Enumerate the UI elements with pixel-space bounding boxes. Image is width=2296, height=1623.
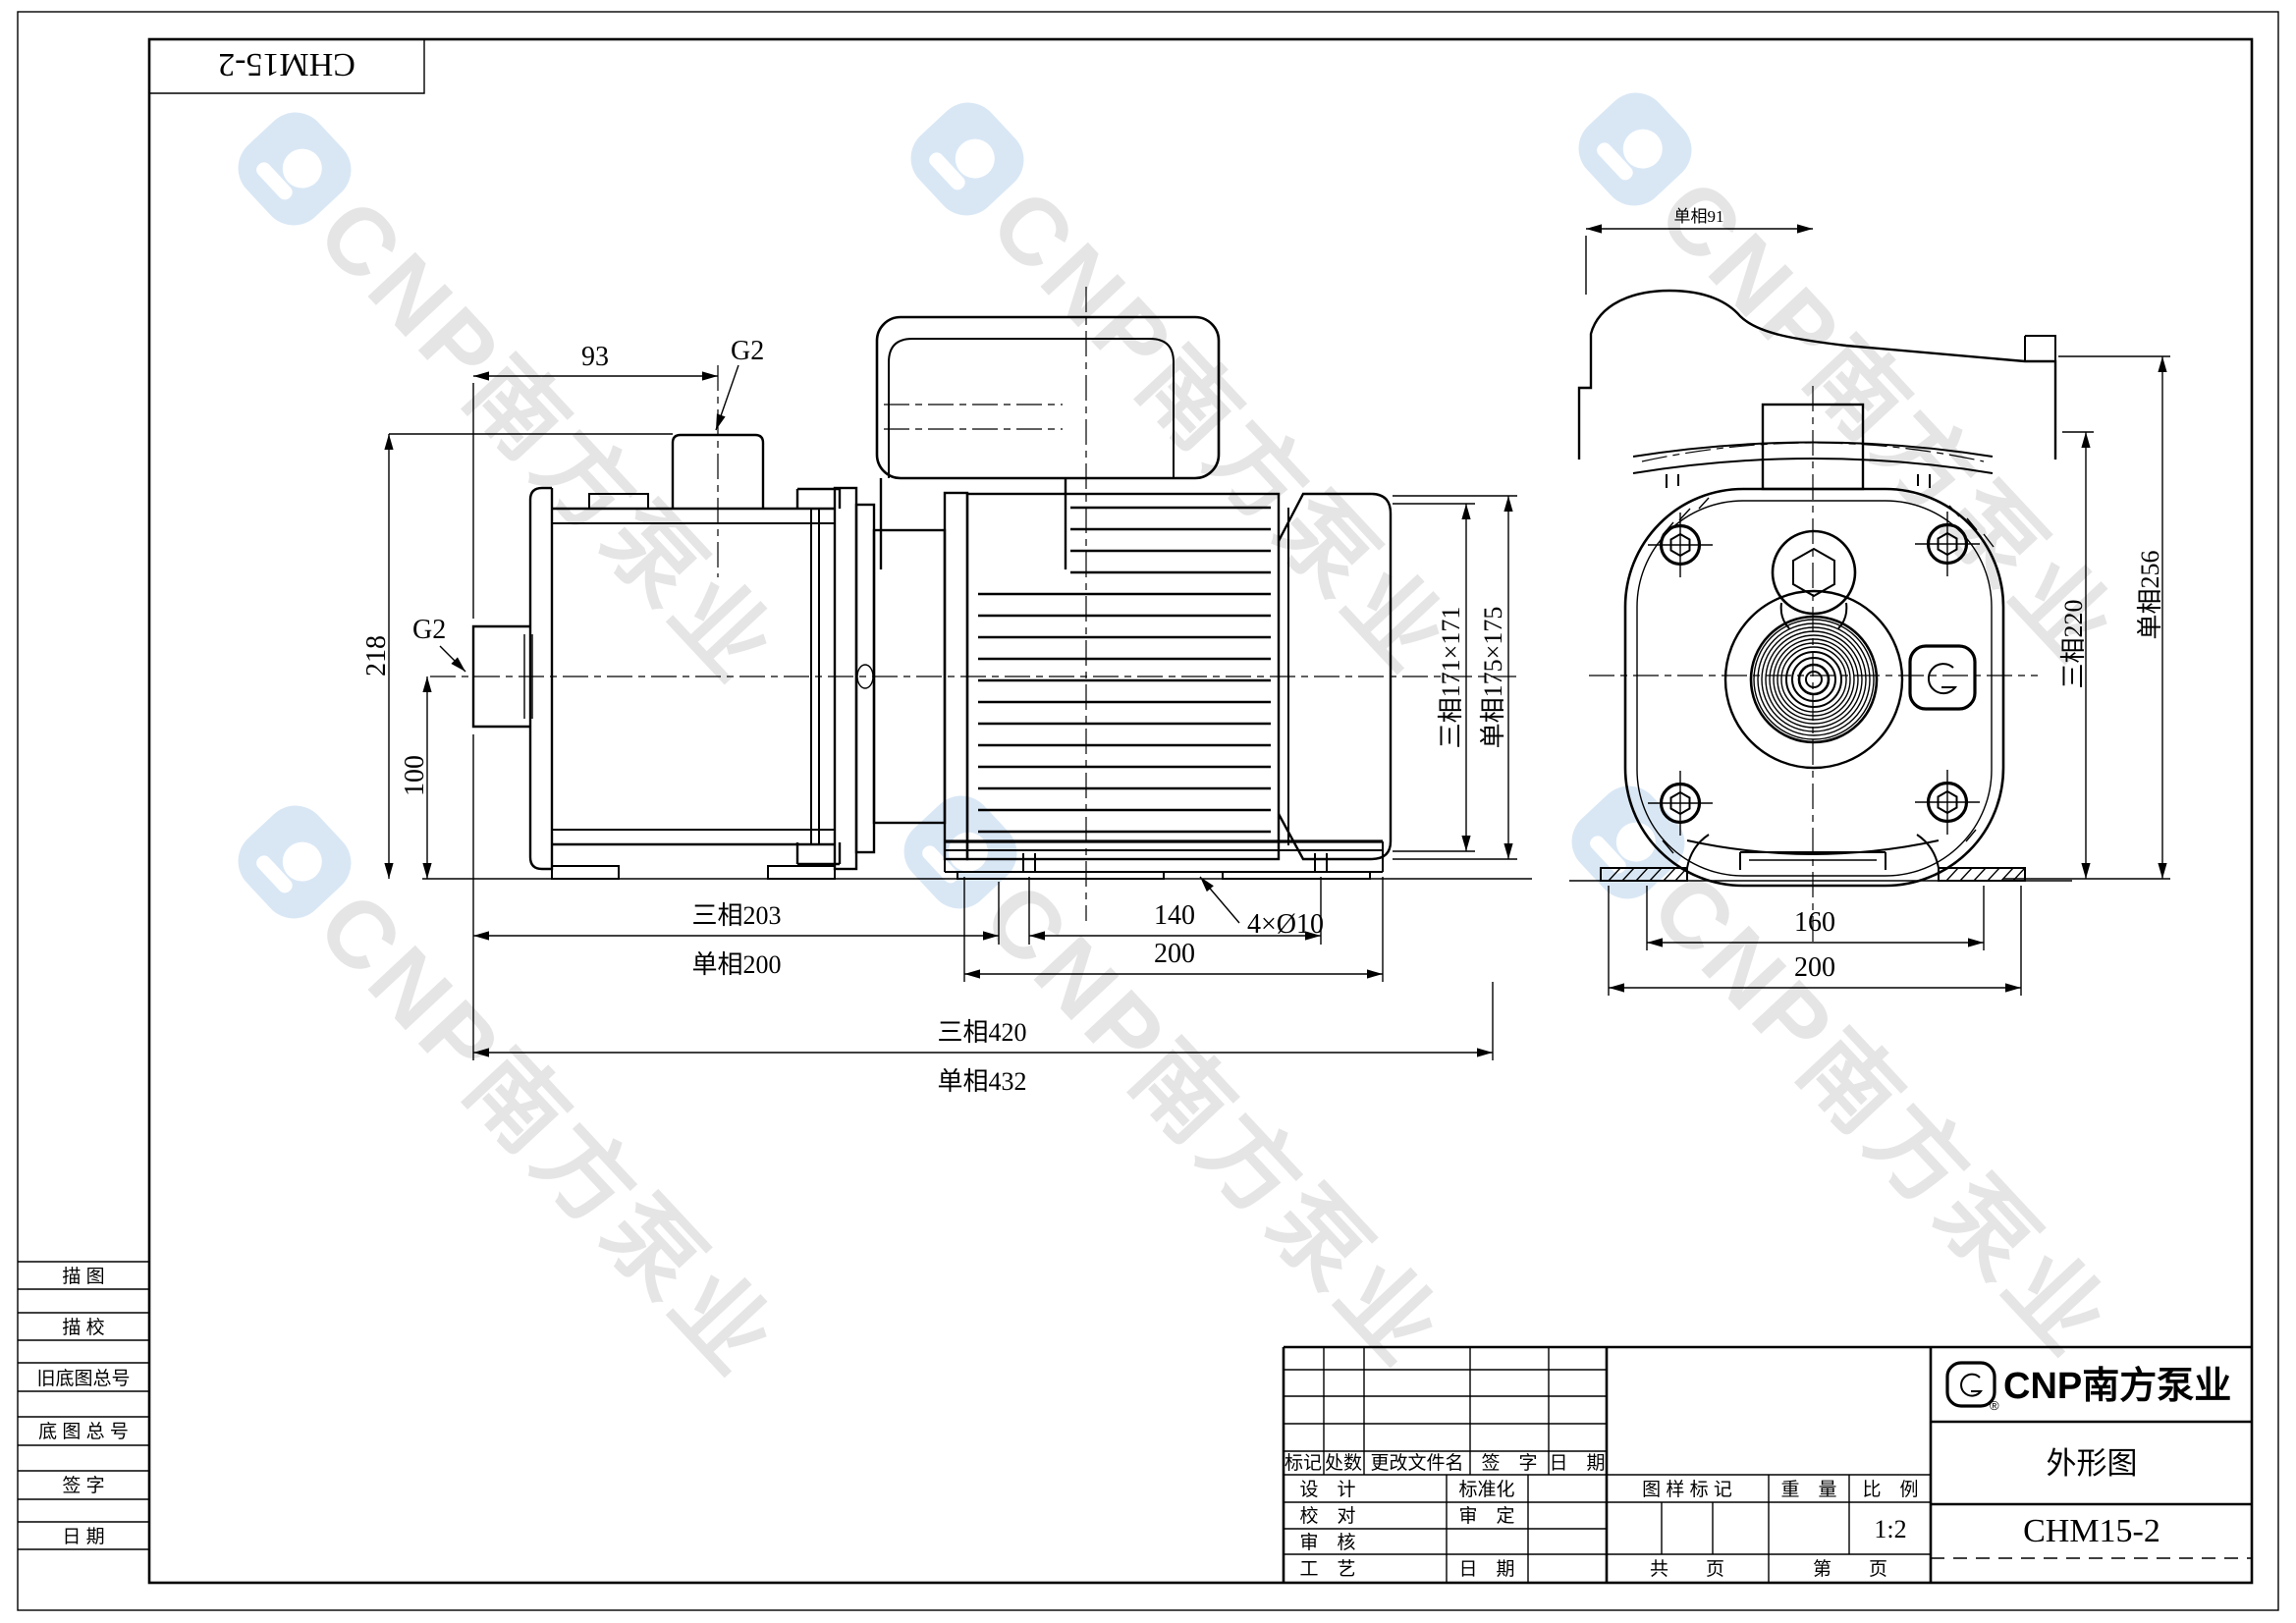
brand-name: CNP南方泵业 <box>2003 1366 2231 1407</box>
watermark: CNP南方泵业 <box>222 791 796 1396</box>
watermark: CNP南方泵业 <box>895 88 1469 693</box>
drawing-info: 图 样 标 记 重 量 比 例 1:2 共 页 第 页 <box>1642 1479 1918 1580</box>
fill-plug <box>1773 531 1855 614</box>
label-weight: 重 量 <box>1780 1479 1836 1500</box>
scale-value: 1:2 <box>1874 1515 1906 1543</box>
dim-160: 160 <box>1794 907 1835 938</box>
label-signature: 签 字 <box>62 1475 104 1496</box>
watermark-text: CNP南方泵业 <box>963 863 1461 1386</box>
base-holes <box>1023 853 1327 872</box>
label-date: 日 期 <box>62 1526 104 1547</box>
rev-date-header: 日 期 <box>1549 1452 1605 1474</box>
watermark: CNP南方泵业 <box>222 98 796 703</box>
label-trace-drawing: 描 图 <box>62 1266 104 1287</box>
brand-panel: ® CNP南方泵业 外形图 CHM15-2 <box>1947 1363 2231 1549</box>
cad-drawing-canvas: CNP南方泵业 CNP南方泵业 CNP南方泵业 CNP南方泵业 CNP南方泵业 … <box>0 0 2296 1623</box>
drawing-title: 外形图 <box>2047 1446 2138 1481</box>
title-block: 标记 处数 更改文件名 签 字 日 期 设 计 标准化 校 对 审 定 审 核 … <box>1284 1347 2252 1583</box>
watermark-layer: CNP南方泵业 CNP南方泵业 CNP南方泵业 CNP南方泵业 CNP南方泵业 … <box>222 79 2137 1396</box>
dim-93: 93 <box>581 342 609 372</box>
watermark-text: CNP南方泵业 <box>1631 853 2129 1377</box>
dim-200-endbase: 200 <box>1794 952 1835 983</box>
dim-256-singlephase: 单相256 <box>2136 550 2164 639</box>
registered-mark: ® <box>1990 1398 1999 1413</box>
dim-g2-discharge: G2 <box>731 336 764 366</box>
label-page-no: 第 页 <box>1813 1558 1887 1580</box>
dim-175x175: 单相175×175 <box>1479 607 1507 749</box>
dim-432-singlephase: 单相432 <box>937 1067 1026 1096</box>
label-craft: 工 艺 <box>1299 1558 1355 1580</box>
watermark: CNP南方泵业 <box>1556 772 2130 1377</box>
dim-171x171: 三相171×171 <box>1437 607 1465 749</box>
label-standardize: 标准化 <box>1458 1479 1514 1500</box>
left-margin-strip: 描 图 描 校 旧底图总号 底 图 总 号 签 字 日 期 <box>18 1262 149 1549</box>
label-proofread: 校 对 <box>1299 1505 1355 1527</box>
revision-table: 标记 处数 更改文件名 签 字 日 期 <box>1285 1452 1606 1474</box>
dim-220-threephase: 三相220 <box>2059 599 2088 688</box>
end-view-dimensions: 单相91 三相220 单相256 160 200 <box>1586 207 2170 996</box>
label-review: 审 核 <box>1299 1532 1355 1553</box>
dim-200-base: 200 <box>1154 939 1195 969</box>
label-scale: 比 例 <box>1862 1479 1918 1500</box>
dim-91-singlephase: 单相91 <box>1674 207 1724 226</box>
dim-100: 100 <box>400 755 430 796</box>
top-left-part-box: CHM15-2 <box>149 39 424 93</box>
cooling-fins <box>978 508 1271 832</box>
watermark-text: CNP南方泵业 <box>298 180 795 703</box>
model-number: CHM15-2 <box>2023 1513 2160 1549</box>
label-trace-check: 描 校 <box>62 1317 104 1338</box>
dim-218: 218 <box>361 635 392 676</box>
dim-140: 140 <box>1154 900 1195 931</box>
rev-count-header: 处数 <box>1325 1452 1362 1474</box>
pump-head <box>835 488 945 869</box>
dim-420-threephase: 三相420 <box>937 1018 1026 1047</box>
label-old-master-no: 旧底图总号 <box>36 1368 130 1389</box>
label-design: 设 计 <box>1299 1479 1355 1500</box>
shaft-coupling <box>1725 591 1902 768</box>
bolt <box>1915 770 1980 835</box>
cast-logo-icon <box>1910 646 1975 709</box>
dim-203-threephase: 三相203 <box>691 901 781 930</box>
cnp-logo-icon <box>1947 1363 1995 1406</box>
part-number-reversed: CHM15-2 <box>218 46 355 82</box>
dim-holes-4xd10: 4×Ø10 <box>1247 909 1324 940</box>
label-drawing-mark: 图 样 标 记 <box>1642 1479 1732 1500</box>
label-approve: 审 定 <box>1458 1505 1514 1527</box>
drawing-sheet: CNP南方泵业 CNP南方泵业 CNP南方泵业 CNP南方泵业 CNP南方泵业 … <box>0 0 2296 1623</box>
rev-mark-header: 标记 <box>1285 1452 1322 1474</box>
rev-file-header: 更改文件名 <box>1370 1452 1463 1474</box>
dim-200-singlephase: 单相200 <box>691 950 781 979</box>
label-total-pages: 共 页 <box>1650 1558 1724 1580</box>
label-master-no: 底 图 总 号 <box>38 1421 129 1442</box>
rev-sign-header: 签 字 <box>1481 1452 1537 1474</box>
bolt <box>1648 513 1713 577</box>
dim-g2-suction: G2 <box>412 615 446 645</box>
label-date: 日 期 <box>1458 1558 1514 1580</box>
